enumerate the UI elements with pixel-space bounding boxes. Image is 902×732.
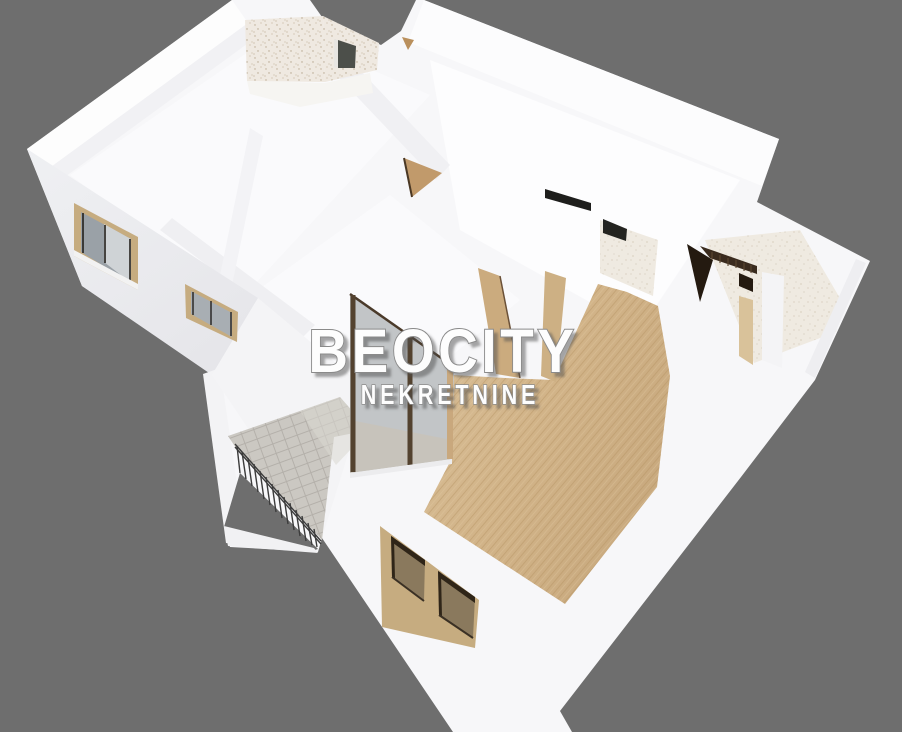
svg-text:NEKRETNINE: NEKRETNINE (361, 379, 540, 410)
svg-text:BEOCITY: BEOCITY (308, 317, 577, 385)
